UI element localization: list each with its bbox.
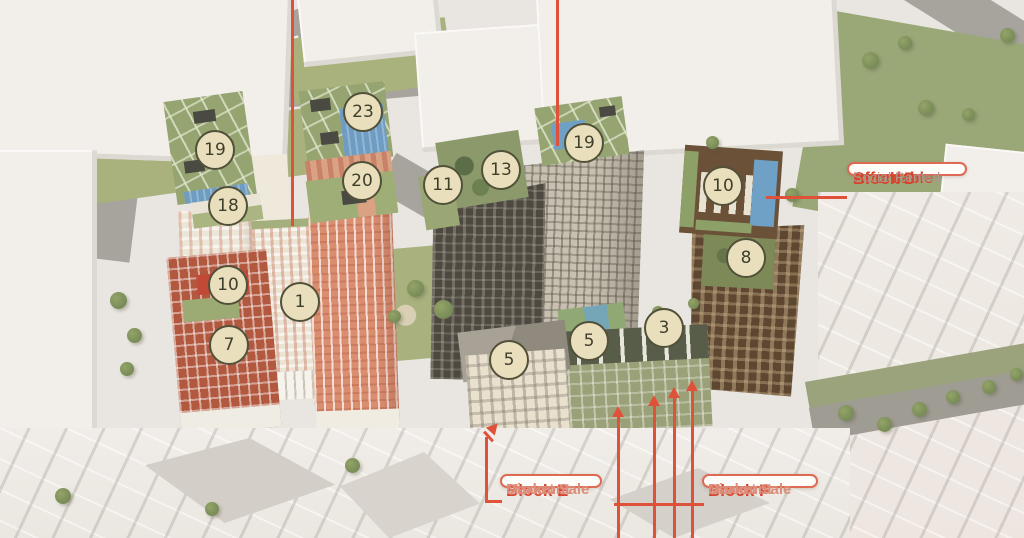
tree <box>407 280 424 297</box>
tree <box>120 362 134 376</box>
tree <box>1000 28 1015 43</box>
storey-badge-c13: 13 <box>481 150 521 190</box>
tree <box>55 488 71 504</box>
arrowhead-block-f <box>612 406 624 417</box>
tree <box>785 188 799 202</box>
storey-badge-e5: 5 <box>489 340 529 380</box>
site-aerial-render: 19 18 10 7 23 20 1 11 13 19 10 8 5 5 3 B… <box>0 0 1024 538</box>
storey-badge-f3: 3 <box>644 308 684 348</box>
storey-badge-b23: 23 <box>343 92 383 132</box>
tree <box>110 292 127 309</box>
tree <box>345 458 360 473</box>
roof-planting <box>679 151 698 228</box>
arrowhead-block-f <box>668 387 680 398</box>
storey-badge-d8: 8 <box>726 238 766 278</box>
block-f-subtenure: Market Sale <box>708 481 791 499</box>
roof-plant-box <box>310 98 331 112</box>
storey-badge-a19: 19 <box>195 130 235 170</box>
leader-line-block-c <box>556 0 559 146</box>
leader-line-block-f <box>691 391 694 538</box>
tree <box>982 380 996 394</box>
storey-badge-d10: 10 <box>703 166 743 206</box>
tree <box>127 328 142 343</box>
storey-badge-a7: 7 <box>209 325 249 365</box>
tree <box>877 417 892 432</box>
leader-line-block-e <box>485 437 488 503</box>
leader-line-block-f <box>617 417 620 538</box>
block-b-tower-facade <box>308 211 400 436</box>
tree <box>962 108 975 121</box>
leader-line-block-f <box>653 406 656 538</box>
storey-badge-c11: 11 <box>423 165 463 205</box>
tree <box>946 390 960 404</box>
callout-block-f: Block F Discount Market Sale <box>702 474 818 488</box>
leader-line-block-d <box>766 196 847 199</box>
background-building <box>0 150 97 440</box>
tree <box>838 405 854 421</box>
block-e-subtenure: Market Sale <box>506 481 589 499</box>
storey-badge-c19: 19 <box>564 123 604 163</box>
storey-badge-b20: 20 <box>342 161 382 201</box>
tree <box>205 502 219 516</box>
arrowhead-block-f <box>686 380 698 391</box>
tree <box>434 300 453 319</box>
tree <box>1010 368 1023 381</box>
tree <box>912 402 927 417</box>
background-building <box>414 24 552 153</box>
tree <box>688 298 699 309</box>
roof-plant-box <box>599 105 616 117</box>
callout-block-d: Block D Affordable Social Rented <box>847 162 967 176</box>
storey-badge-b1: 1 <box>280 282 320 322</box>
tree <box>862 52 879 69</box>
storey-badge-a10: 10 <box>208 265 248 305</box>
tree <box>388 310 401 323</box>
arrowhead-block-f <box>648 395 660 406</box>
roof-plant-box <box>193 109 216 124</box>
block-d-subtenure: Social Rented <box>853 169 940 186</box>
leader-line-block-b <box>291 0 294 226</box>
leader-line-block-f <box>673 398 676 538</box>
roof-pool <box>750 160 779 228</box>
storey-badge-a18: 18 <box>208 186 248 226</box>
roof-plant-box <box>320 131 339 145</box>
callout-block-e: Block E Discount Market Sale <box>500 474 602 488</box>
leader-line-block-e <box>485 500 502 503</box>
storey-badge-f5: 5 <box>569 321 609 361</box>
tree <box>706 136 719 149</box>
roof-planting <box>695 220 752 234</box>
tree <box>898 36 912 50</box>
tree <box>918 100 934 116</box>
